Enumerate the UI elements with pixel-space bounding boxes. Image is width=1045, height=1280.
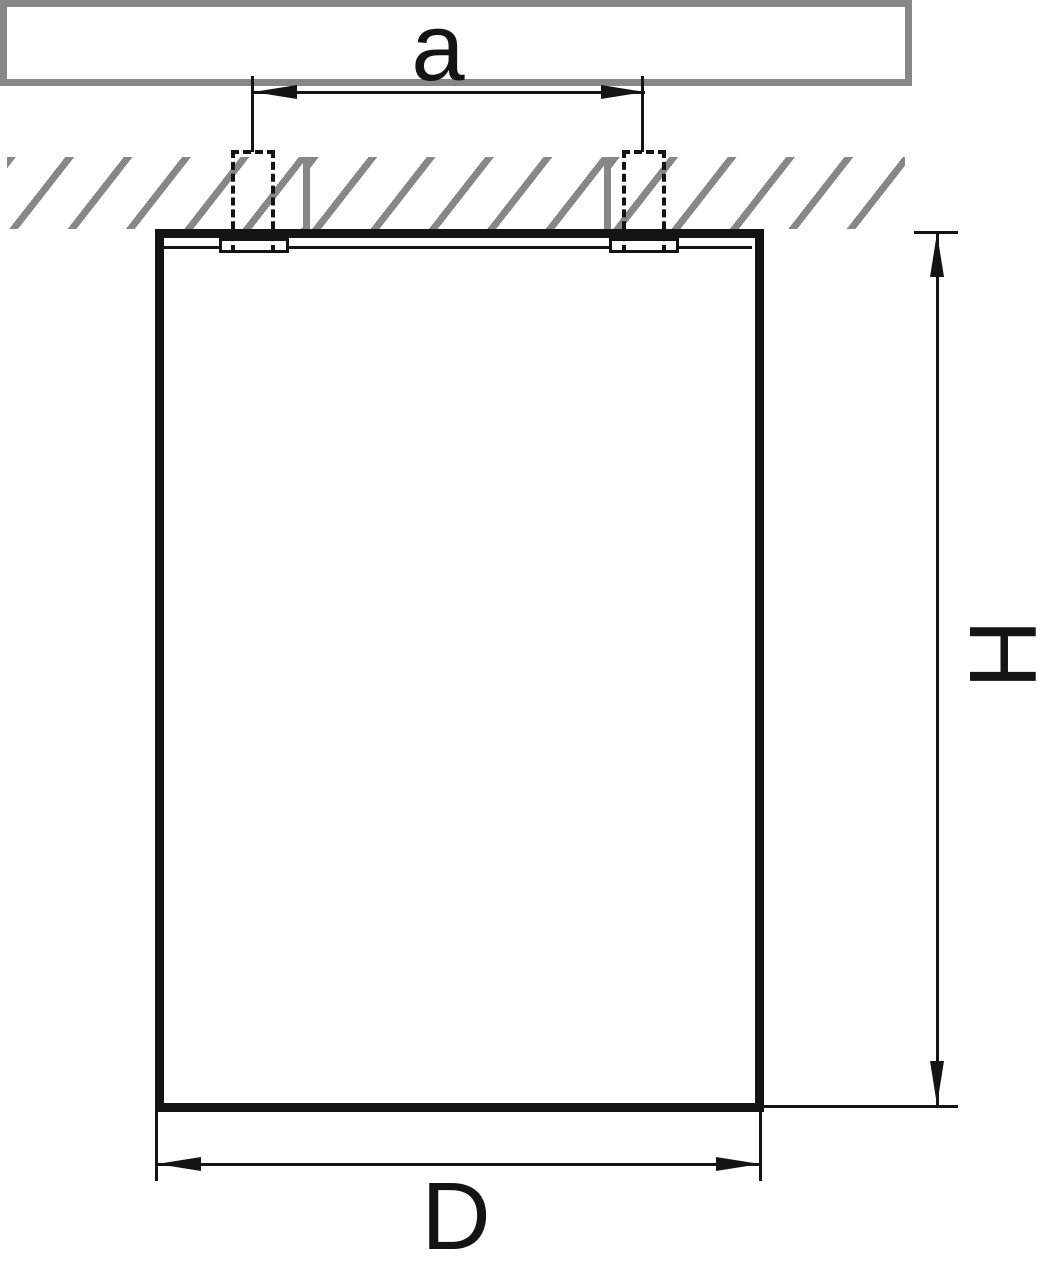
ceiling-cut-line-left [303,157,310,229]
dim-d-arrowhead-left [157,1157,201,1171]
dim-a-label: a [373,0,503,96]
dim-a-arrowhead-right [601,85,645,99]
dim-h-arrowhead-top [930,233,944,277]
fixture-body-outline [155,229,764,1112]
dim-a-arrowhead-left [253,85,297,99]
mounting-hole-left [231,150,275,253]
dim-h-line [936,234,939,1105]
dim-d-arrowhead-right [716,1157,760,1171]
ceiling-hatch-middle [310,157,604,229]
dim-d-label: D [391,1169,521,1265]
dim-h-arrowhead-bottom [930,1061,944,1105]
mounting-hole-right [622,150,666,253]
dimension-drawing: a H D [0,0,1045,1280]
dim-h-label: H [954,589,1045,719]
dim-h-extension-bottom [764,1105,958,1108]
ceiling-cut-line-right [604,157,611,229]
